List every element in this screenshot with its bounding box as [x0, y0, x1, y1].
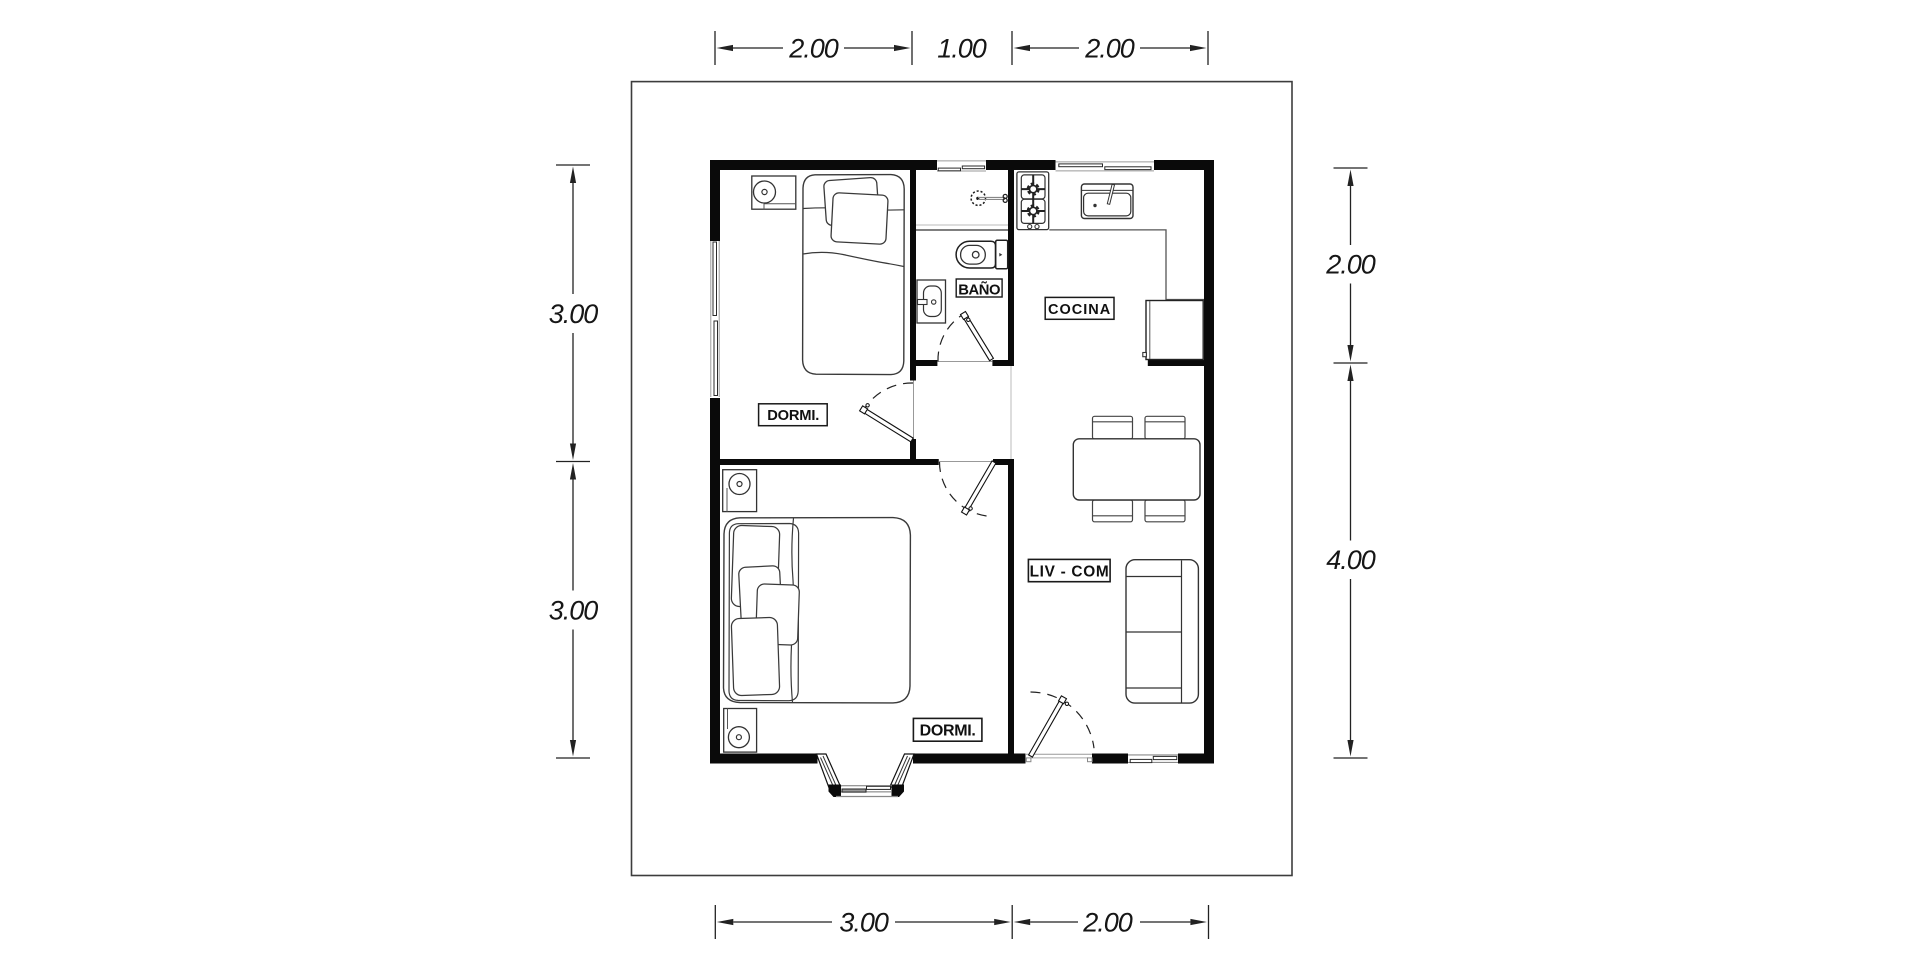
svg-text:3.00: 3.00 [549, 299, 599, 329]
svg-text:COCINA: COCINA [1048, 302, 1111, 318]
svg-text:2.00: 2.00 [1325, 250, 1376, 280]
svg-text:2.00: 2.00 [1082, 908, 1133, 938]
svg-text:DORMI.: DORMI. [920, 723, 976, 740]
svg-text:2.00: 2.00 [788, 34, 839, 64]
svg-text:LIV - COM: LIV - COM [1030, 564, 1110, 581]
svg-text:3.00: 3.00 [549, 596, 599, 626]
svg-text:4.00: 4.00 [1326, 545, 1376, 575]
svg-text:3.00: 3.00 [839, 908, 889, 938]
svg-text:2.00: 2.00 [1084, 34, 1135, 64]
svg-text:1.00: 1.00 [937, 34, 987, 64]
svg-text:BAÑO: BAÑO [958, 280, 1000, 298]
svg-text:DORMI.: DORMI. [767, 408, 819, 424]
